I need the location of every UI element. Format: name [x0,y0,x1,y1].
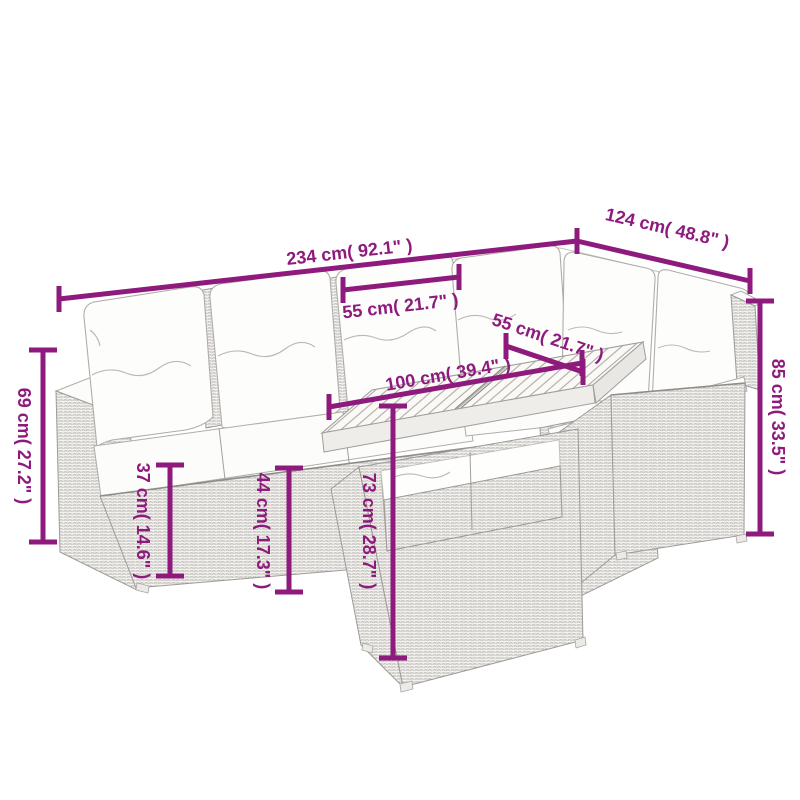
dim-label-total-depth: 124 cm( 48.8" ) [603,204,731,252]
right-bench-base-front [611,383,745,555]
dim-label-seat-height: 37 cm( 14.6" ) [133,463,153,580]
diagram-svg: 234 cm( 92.1" ) 124 cm( 48.8" ) 85 cm( 3… [0,0,800,800]
dim-label-seat-cushion-height: 44 cm( 17.3" ) [253,473,273,590]
dimension-diagram: 234 cm( 92.1" ) 124 cm( 48.8" ) 85 cm( 3… [0,0,800,800]
dim-label-table-height: 73 cm( 28.7" ) [359,473,379,590]
dim-label-back-height: 85 cm( 33.5" ) [768,359,788,476]
back-cushion [210,271,340,428]
dim-arm-height: 69 cm( 27.2" ) [14,350,57,542]
foot [616,551,627,560]
foot [736,534,747,543]
back-cushion [84,287,213,447]
dim-label-arm-height: 69 cm( 27.2" ) [14,388,34,505]
